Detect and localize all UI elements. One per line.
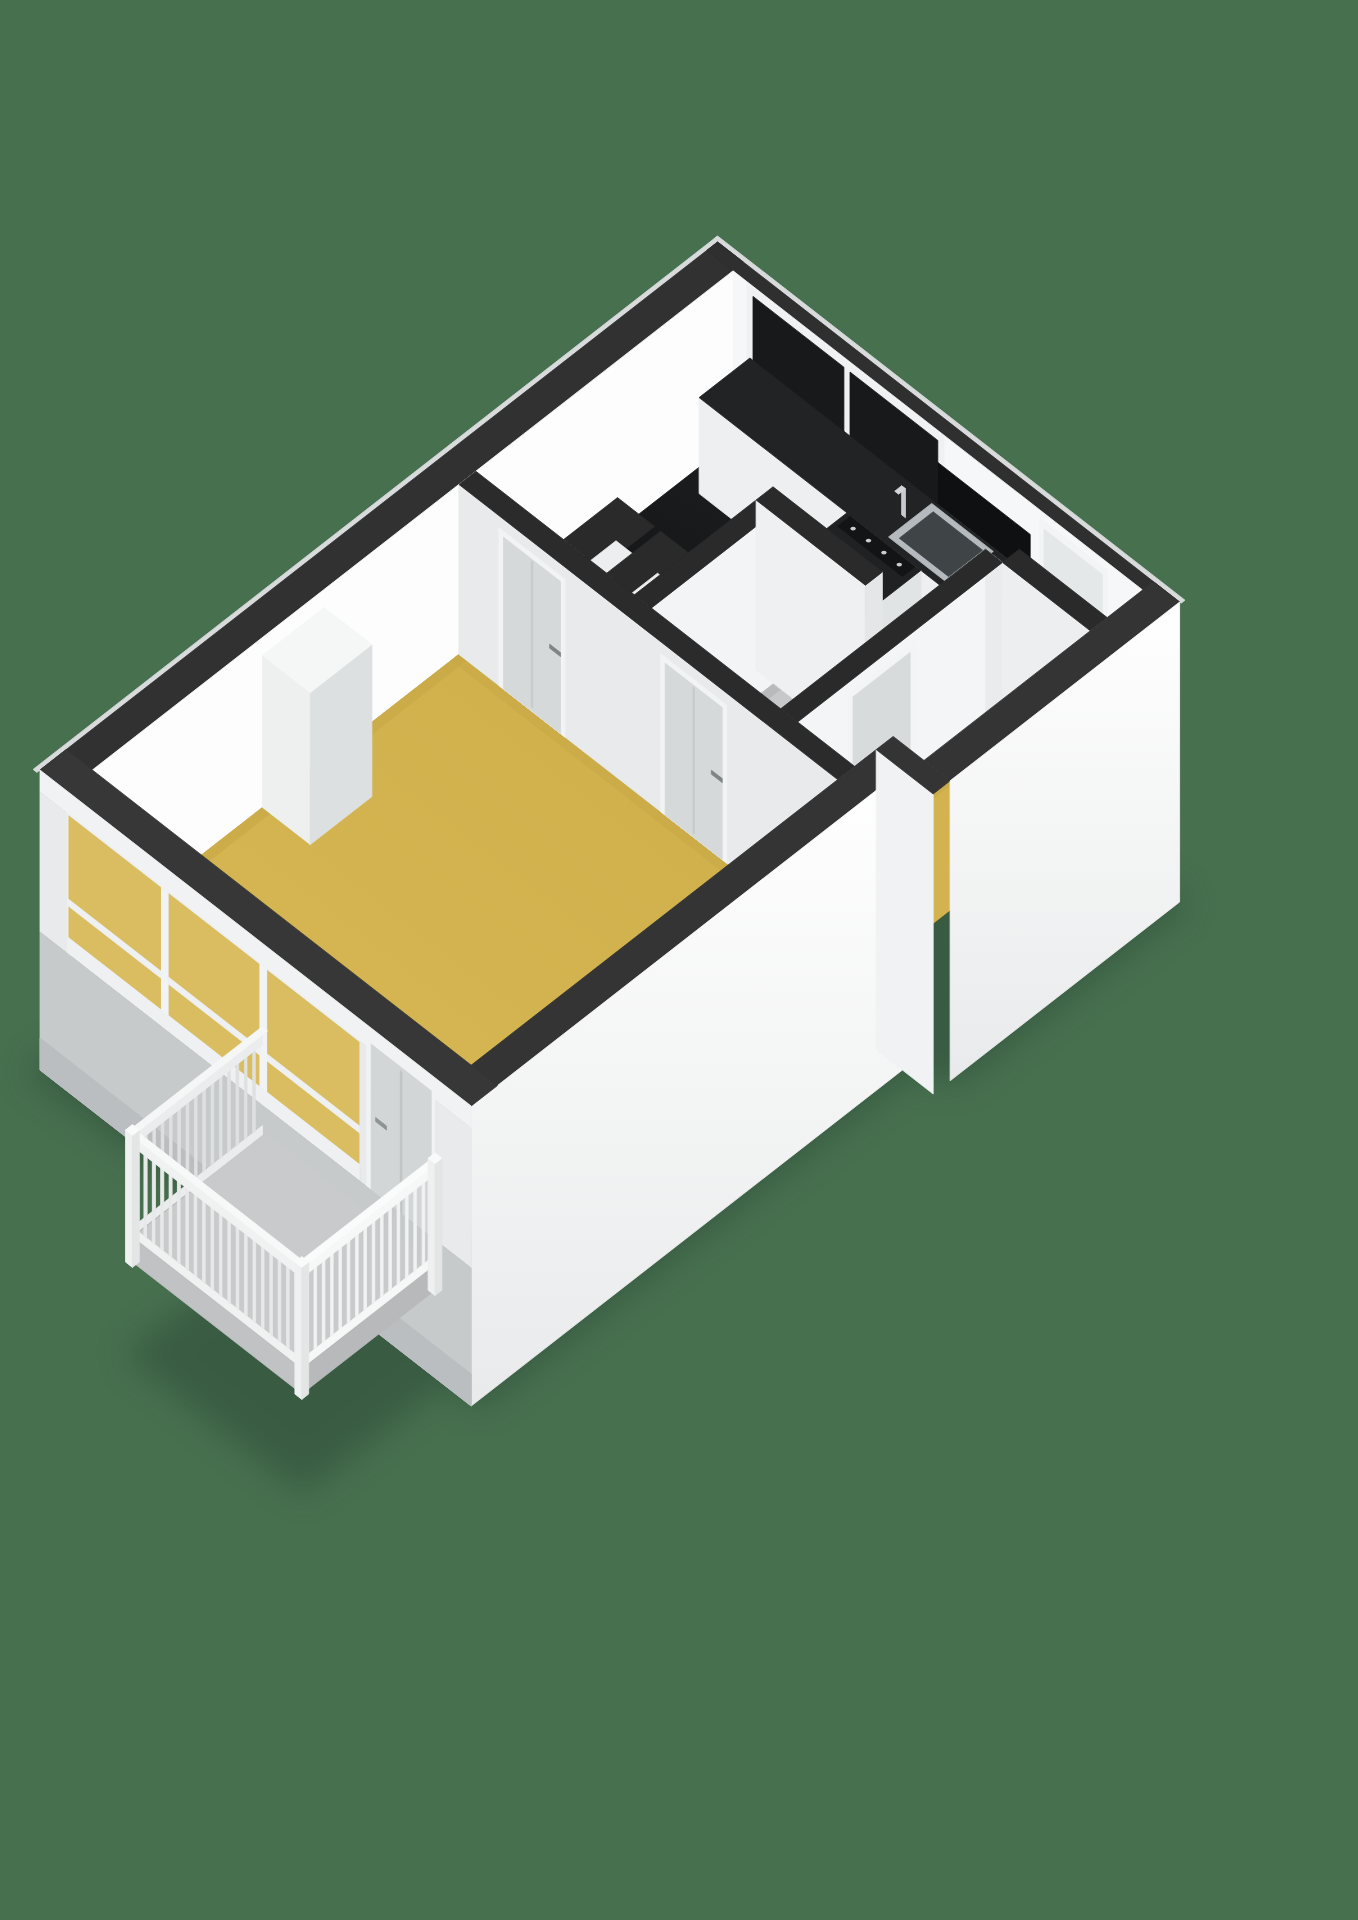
balcony-rail-near-baluster [422, 1182, 425, 1265]
balcony-rail-left-baluster [203, 1201, 206, 1284]
balcony-rail-far-baluster [228, 1070, 231, 1153]
floor-plan-3d-stage [0, 0, 1358, 1920]
balcony-rail-near-baluster [414, 1189, 417, 1272]
balcony-rail-far-baluster [195, 1096, 198, 1179]
wall-se-jog-face [876, 750, 933, 1094]
balcony-post-far-side [132, 1130, 139, 1267]
sw-pier-mid [360, 1042, 366, 1187]
balcony-rail-near-baluster [339, 1247, 342, 1330]
balcony-rail-near-baluster [347, 1241, 350, 1324]
floor-plan-3d-render [0, 0, 1358, 1920]
balcony-rail-near-baluster [322, 1260, 325, 1343]
sw-pier-north [40, 792, 68, 954]
balcony-rail-near-baluster [397, 1202, 400, 1285]
balcony-rail-left-baluster [261, 1247, 264, 1330]
balcony-post-south-side [302, 1262, 309, 1399]
balcony-rail-far-baluster [236, 1063, 239, 1146]
cooktop-knob-3 [881, 551, 886, 555]
balcony-rail-near-baluster [381, 1215, 384, 1298]
balcony-rail-left-baluster [228, 1220, 231, 1303]
balcony-rail-left-baluster [211, 1207, 214, 1290]
balcony-rail-near-baluster [364, 1228, 367, 1311]
balcony-rail-left-baluster [270, 1253, 273, 1336]
balcony-rail-near-baluster [372, 1221, 375, 1304]
balcony-post-south-front [295, 1262, 302, 1399]
balcony-rail-near-baluster [314, 1267, 317, 1350]
balcony-rail-left-baluster [177, 1181, 180, 1264]
balcony-rail-left-baluster [236, 1227, 239, 1310]
balcony-post-far-front [126, 1130, 133, 1267]
cooktop-knob-2 [866, 539, 871, 543]
balcony-rail-left-baluster [152, 1162, 155, 1245]
balcony-rail-far-baluster [211, 1083, 214, 1166]
sw-mullion-1 [162, 887, 168, 1032]
cooktop-knob-1 [850, 527, 855, 531]
balcony-rail-far-baluster [203, 1089, 206, 1172]
balcony-rail-left-baluster [245, 1233, 248, 1316]
balcony-rail-left-baluster [194, 1194, 197, 1277]
balcony-rail-near-baluster [356, 1234, 359, 1317]
balcony-rail-left-baluster [186, 1188, 189, 1271]
balcony-rail-near-baluster [389, 1208, 392, 1291]
balcony-post-east-front [428, 1158, 435, 1295]
balcony-rail-far-baluster [253, 1050, 256, 1133]
living-door-1-seam [531, 561, 533, 708]
balcony-rail-left-baluster [253, 1240, 256, 1323]
balcony-rail-near-baluster [405, 1195, 408, 1278]
balcony-rail-left-baluster [219, 1214, 222, 1297]
balcony-rail-left-baluster [144, 1155, 147, 1238]
balcony-rail-left-baluster [287, 1266, 290, 1349]
balcony-rail-left-baluster [278, 1260, 281, 1343]
balcony-post-east-side [435, 1158, 442, 1295]
balcony-rail-near-baluster [331, 1254, 334, 1337]
balcony-rail-left-baluster [161, 1168, 164, 1251]
cooktop-knob-4 [897, 563, 902, 567]
balcony-rail-far-baluster [244, 1057, 247, 1140]
living-door-2-seam [693, 687, 695, 834]
balcony-rail-left-baluster [169, 1175, 172, 1258]
balcony-rail-far-baluster [219, 1076, 222, 1159]
